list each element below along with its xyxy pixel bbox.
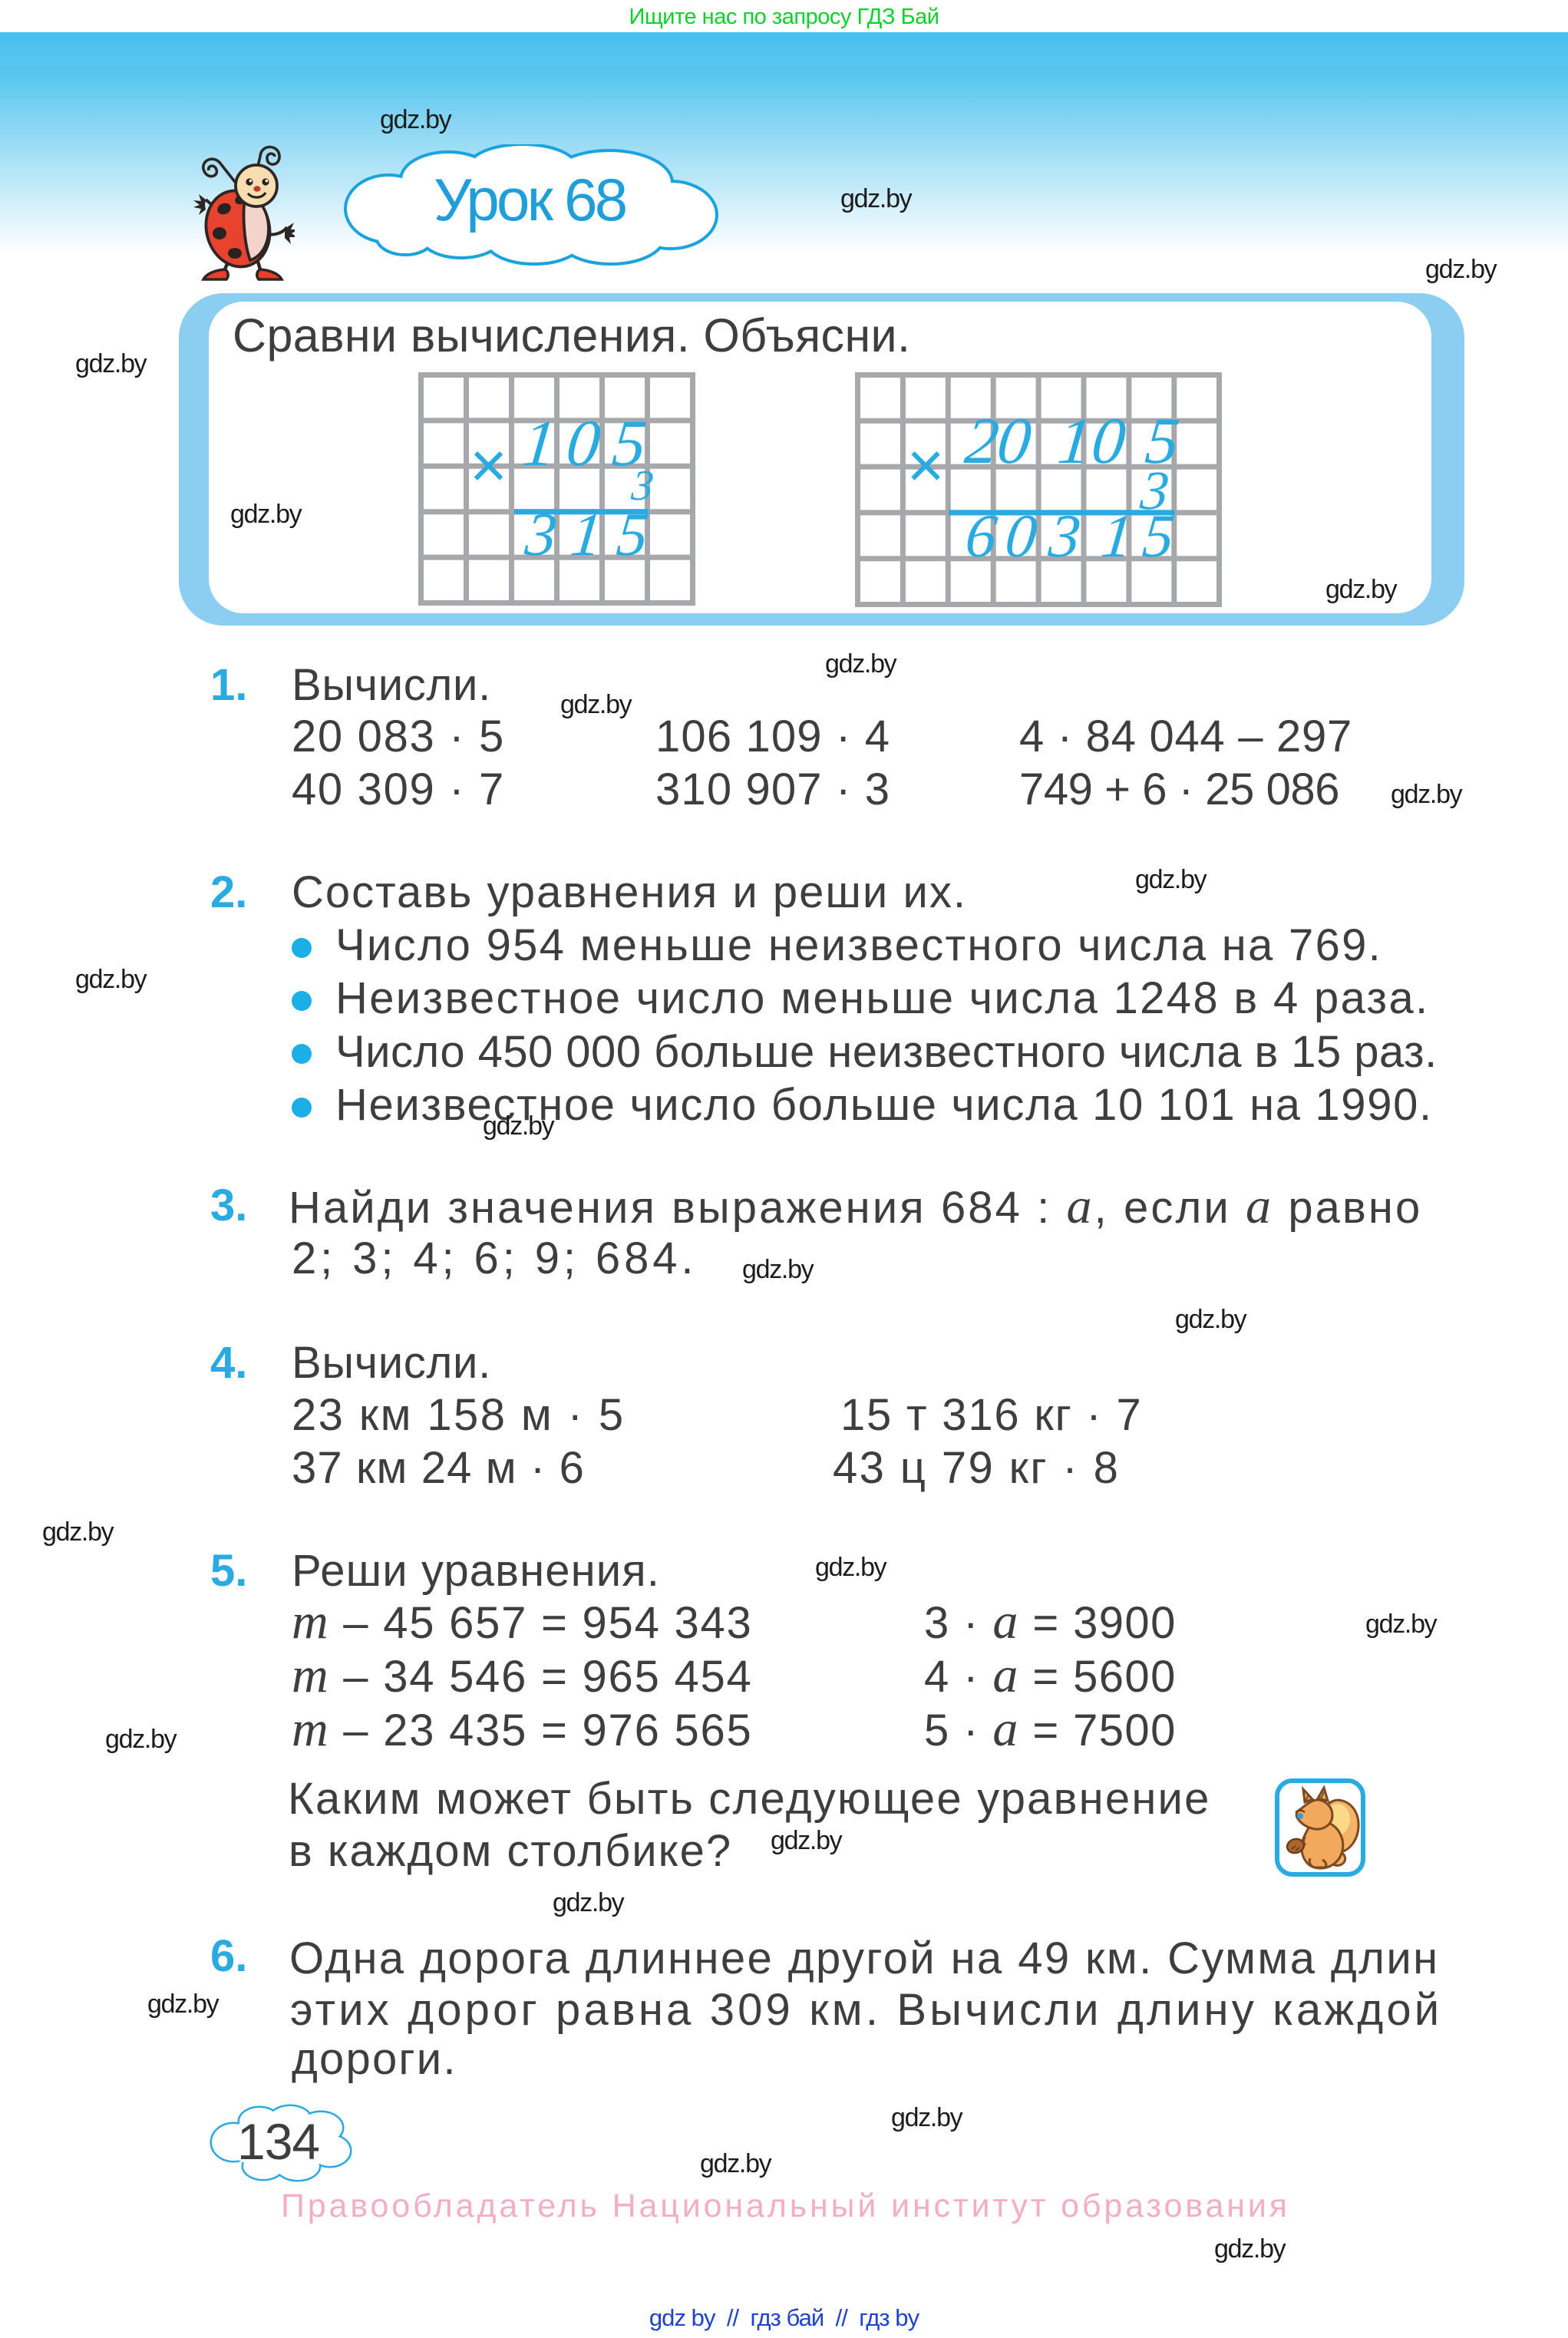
svg-text:×: ×: [470, 429, 507, 501]
svg-text:×: ×: [906, 429, 944, 501]
